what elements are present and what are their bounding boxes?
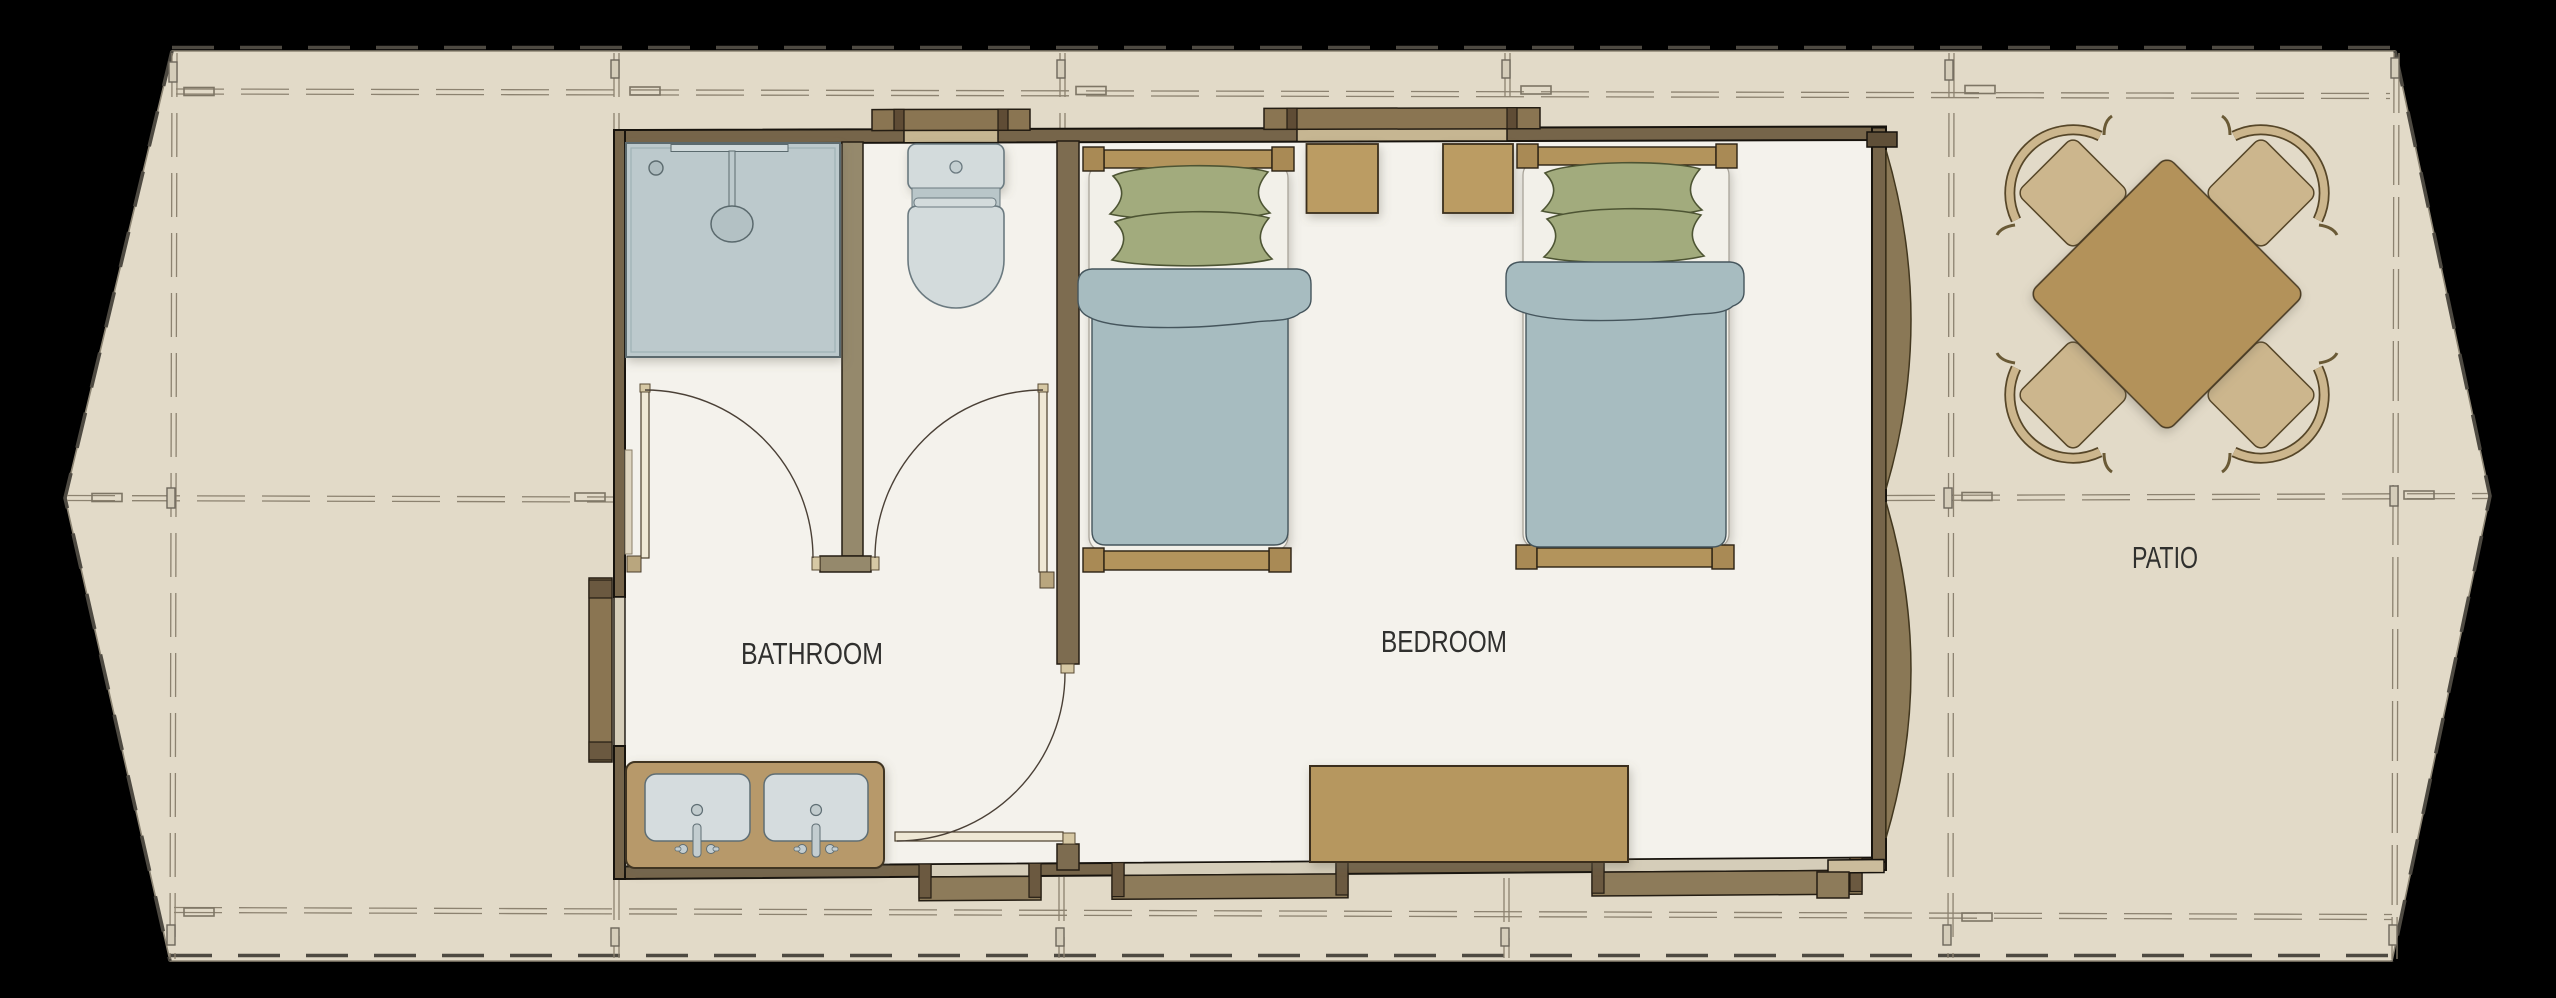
svg-text:BEDROOM: BEDROOM: [1381, 624, 1507, 659]
svg-text:PATIO: PATIO: [2132, 540, 2198, 575]
svg-text:BATHROOM: BATHROOM: [741, 636, 883, 671]
